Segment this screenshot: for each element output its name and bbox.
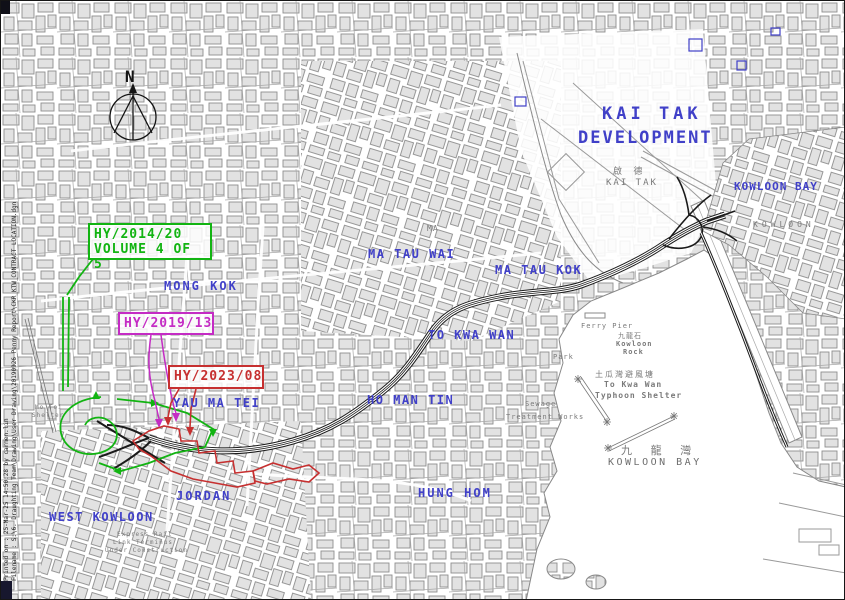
map-label-sewage: Sewage xyxy=(525,400,556,408)
contract-id: HY/2019/13 xyxy=(124,316,208,331)
district-label-ma-tau-wai: MA TAU WAI xyxy=(368,247,455,261)
district-label-west-kowloon: WEST KOWLOON xyxy=(49,510,154,524)
map-label-kowloon-bay-chinese: 九 龍 灣 xyxy=(621,442,697,458)
district-label-ma-tau-kok: MA TAU KOK xyxy=(495,263,582,277)
corner-mark-bottom-left xyxy=(1,581,12,600)
map-label-kowloon-rock-1: Kowloon xyxy=(616,340,653,348)
map-label-erl-3: Under Construction xyxy=(105,547,188,554)
contract-id: HY/2023/08 xyxy=(174,369,258,384)
map-label-erl-2: Link Terminus xyxy=(113,539,173,546)
contract-label-hy-2023-08: HY/2023/08 xyxy=(168,365,264,389)
district-label-kai-tak: KAI TAK xyxy=(602,104,702,124)
contract-label-hy-2014-20: HY/2014/20 VOLUME 4 OF 5 xyxy=(88,223,212,260)
district-label-kai-tak-development: DEVELOPMENT xyxy=(578,128,713,148)
contract-id: HY/2014/20 xyxy=(94,227,206,242)
north-label: N xyxy=(125,67,135,86)
district-label-hung-hom: HUNG HOM xyxy=(418,486,492,500)
district-label-kowloon-bay: KOWLOON BAY xyxy=(734,180,818,193)
plot-info: Printed on : 25-Mar-25 14:50:28 by carme… xyxy=(3,149,19,581)
map-label-tkw-shelter-1: To Kwa Wan xyxy=(604,380,662,389)
map-label-ma: MA xyxy=(427,224,439,233)
map-label-kai-tak-grey: KAI TAK xyxy=(606,178,658,188)
map-label-kai-tak-chinese: 啟 德 xyxy=(613,164,645,177)
contract-volume: VOLUME 4 OF 5 xyxy=(94,242,206,272)
district-label-ho-man-tin: HO MAN TIN xyxy=(367,393,454,407)
map-label-kowloon-rock-2: Rock xyxy=(623,348,644,356)
map-label-park: Park xyxy=(553,353,574,361)
district-label-yau-ma-tei: YAU MA TEI xyxy=(173,396,260,410)
district-label-to-kwa-wan: TO KWA WAN xyxy=(428,328,515,342)
map-label-kowloon-bay-grey: KOWLOON BAY xyxy=(608,457,702,468)
district-label-mong-kok: MONG KOK xyxy=(164,279,238,293)
map-label-erl-1: Express Rail xyxy=(117,531,172,538)
map-label-ferry-pier: Ferry Pier xyxy=(581,322,633,330)
map-label-shelter-1: Mo Toi xyxy=(35,404,63,411)
printed-on-text: Printed on : 25-Mar-25 14:50:28 by carme… xyxy=(3,149,11,581)
map-label-shelter-2: Shelter xyxy=(32,412,64,419)
district-label-jordan: JORDAN xyxy=(176,489,231,503)
filename-text: Filename : S:\6. Draughting Team\Drawing… xyxy=(11,149,19,581)
map-label-tkw-shelter-2: Typhoon Shelter xyxy=(595,391,682,400)
map-label-tkw-shelter-chinese: 土瓜灣避風塘 xyxy=(595,369,655,380)
contract-label-hy-2019-13: HY/2019/13 xyxy=(118,312,214,335)
map-label-kowloon-grey: KOWLOON xyxy=(753,220,815,229)
map-canvas: MONG KOK MA TAU WAI MA TAU KOK TO KWA WA… xyxy=(0,0,845,600)
corner-mark-top-left xyxy=(1,1,10,14)
map-label-treatment-works: Treatment Works xyxy=(506,413,584,421)
